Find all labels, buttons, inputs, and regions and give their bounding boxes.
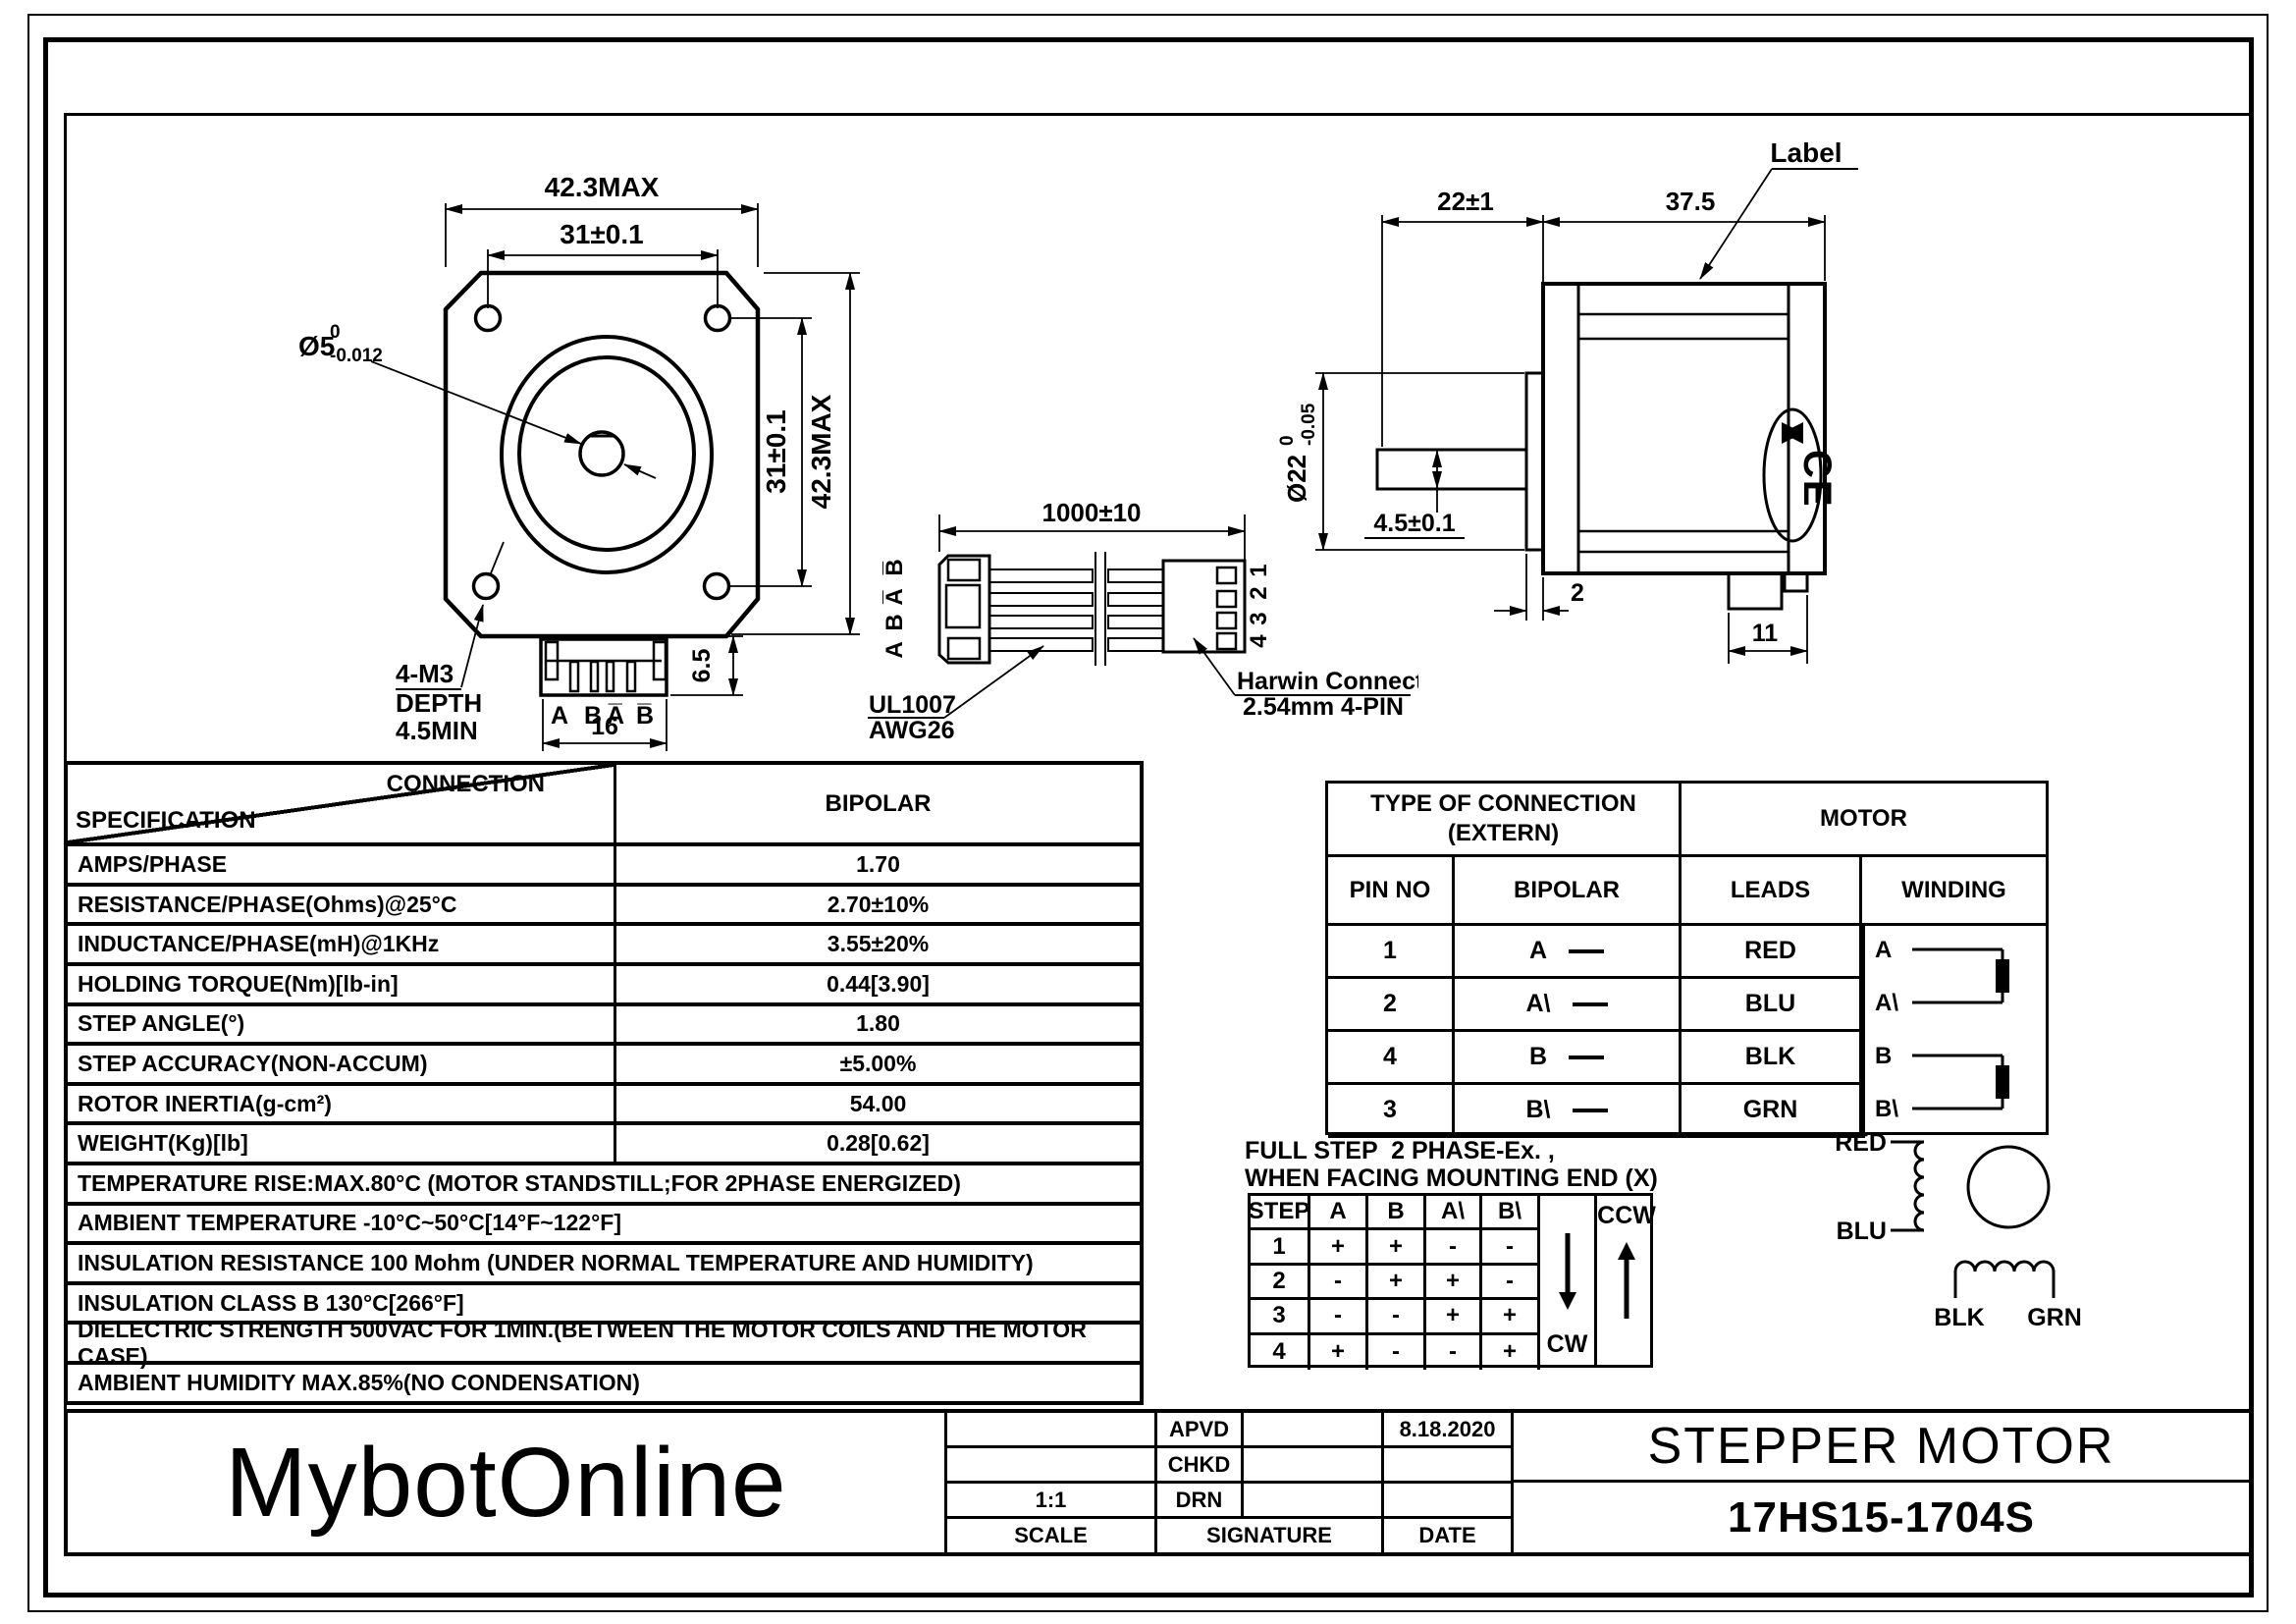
- lead-color: RED: [1682, 926, 1862, 976]
- fs-step: 4: [1251, 1335, 1310, 1370]
- spec-header-diagonal-cell: CONNECTION SPECIFICATION: [68, 765, 616, 842]
- winding-label-a: A: [1875, 937, 1892, 963]
- fullstep-row: 2 - + + -: [1251, 1266, 1540, 1300]
- dim-body-length: 37.5: [1666, 187, 1716, 216]
- spec-label: HOLDING TORQUE(Nm)[lb-in]: [68, 966, 616, 1002]
- spec-label: INDUCTANCE/PHASE(mH)@1KHz: [68, 926, 616, 962]
- title-block: MybotOnline 1:1 SCALE APVD CHKD DRN SIGN…: [64, 1409, 2253, 1556]
- fs-val: +: [1310, 1230, 1368, 1262]
- fullstep-row: 1 + + - -: [1251, 1230, 1540, 1265]
- thread-note-line2: DEPTH: [396, 688, 482, 718]
- dim-hole-spacing-v: 31±0.1: [761, 409, 791, 493]
- shaft-leader-tail: [624, 464, 656, 478]
- spec-row: INDUCTANCE/PHASE(mH)@1KHz3.55±20%: [68, 922, 1140, 962]
- fullstep-title-line1: FULL STEP 2 PHASE-Ex. ,: [1245, 1137, 1555, 1165]
- scale-value: 1:1: [947, 1484, 1157, 1519]
- drawing-title: STEPPER MOTOR: [1514, 1413, 2249, 1483]
- connection-table-subheader: PIN NO BIPOLAR LEADS WINDING: [1328, 857, 2046, 926]
- fullstep-row: 4 + - - +: [1251, 1335, 1540, 1370]
- dim-cable-length: 1000±10: [1041, 498, 1141, 527]
- date-cell-blank: [1384, 1484, 1514, 1519]
- boss-dia-label: Ø22: [1282, 455, 1311, 503]
- rotor-circle: [1968, 1147, 2049, 1227]
- fs-val: +: [1368, 1266, 1426, 1297]
- bipolar-phase: A\: [1455, 979, 1682, 1029]
- spec-value: 0.44[3.90]: [616, 966, 1140, 1002]
- cw-arrow-icon: [1559, 1233, 1576, 1310]
- company-logo: MybotOnline: [68, 1413, 947, 1552]
- spec-note: AMBIENT HUMIDITY MAX.85%(NO CONDENSATION…: [68, 1361, 1140, 1401]
- harwin-pin: [1217, 591, 1236, 607]
- side-connector: [1729, 573, 1782, 609]
- spec-value: 0.28[0.62]: [616, 1125, 1140, 1162]
- ce-mark-text: CE: [1795, 450, 1839, 509]
- screw-hole: [706, 306, 730, 331]
- connector-pin: [570, 662, 578, 691]
- header-extern-line2: (EXTERN): [1448, 819, 1559, 848]
- col-bipolar: BIPOLAR: [1455, 857, 1682, 923]
- scale-cell-blank: [947, 1448, 1157, 1484]
- wire-stub: [1569, 1056, 1604, 1059]
- fs-val: +: [1426, 1300, 1482, 1331]
- date-label: DATE: [1384, 1519, 1514, 1552]
- coil-a: [1996, 959, 2009, 993]
- fs-step: 1: [1251, 1230, 1310, 1262]
- wire-stub: [1569, 949, 1604, 953]
- spec-note: INSULATION RESISTANCE 100 Mohm (UNDER NO…: [68, 1241, 1140, 1281]
- boss-tol-lower: -0.05: [1299, 403, 1319, 446]
- date-cell-blank: [1384, 1448, 1514, 1484]
- fs-val: +: [1368, 1230, 1426, 1262]
- fs-val: -: [1426, 1335, 1482, 1370]
- lead-red-label: RED: [1835, 1129, 1887, 1157]
- dim-boss-thickness: 2: [1571, 579, 1584, 607]
- pin-label-bbar: B̅: [636, 702, 654, 730]
- chkd-label: CHKD: [1157, 1448, 1244, 1484]
- boss-dia-callout: Ø22 0 -0.05: [1277, 403, 1319, 503]
- lead-blu-label: BLU: [1837, 1218, 1887, 1245]
- scale-cell-blank: [947, 1413, 1157, 1448]
- coil-phase-b: [1955, 1262, 2054, 1298]
- connection-row: 4 B BLK: [1328, 1032, 1865, 1085]
- spec-label: STEP ANGLE(°): [68, 1006, 616, 1043]
- fs-val: +: [1310, 1335, 1368, 1370]
- phase-label: B: [1529, 1043, 1547, 1071]
- fullstep-row: 3 - - + +: [1251, 1300, 1540, 1334]
- dim-side-connector-width: 11: [1752, 620, 1779, 647]
- pin-no: 2: [1328, 979, 1455, 1029]
- approval-date: 8.18.2020: [1384, 1413, 1514, 1448]
- header-motor: MOTOR: [1682, 784, 2046, 854]
- spec-header-specification: SPECIFICATION: [76, 807, 256, 835]
- wire-spec-line1: UL1007: [869, 691, 956, 719]
- fs-val: -: [1482, 1266, 1540, 1297]
- label-callout: Label: [1770, 137, 1842, 168]
- pilot-boss-inner: [519, 357, 694, 550]
- signature-label: SIGNATURE: [1157, 1519, 1384, 1552]
- fs-val: -: [1368, 1300, 1426, 1331]
- harwin-leader: [1194, 638, 1235, 695]
- part-number: 17HS15-1704S: [1514, 1483, 2249, 1552]
- winding-label-abar: A\: [1875, 990, 1898, 1016]
- pin-no: 4: [1328, 1032, 1455, 1082]
- coil-phase-a: [1915, 1142, 1924, 1230]
- front-connector-outline: [541, 639, 667, 695]
- fs-val: -: [1310, 1300, 1368, 1331]
- spec-value: 2.70±10%: [616, 887, 1140, 923]
- spec-label: ROTOR INERTIA(g-cm²): [68, 1086, 616, 1122]
- wire-stub: [1573, 1002, 1608, 1006]
- shaft-tol-upper: 0: [330, 322, 341, 343]
- winding-diagram: RED BLU BLK GRN: [1826, 1110, 2101, 1335]
- col-leads: LEADS: [1682, 857, 1862, 923]
- thread-note-line1: 4-M3: [396, 659, 454, 688]
- spec-row: ROTOR INERTIA(g-cm²)54.00: [68, 1082, 1140, 1122]
- connector-pin: [627, 662, 635, 691]
- spec-header-connection: CONNECTION: [387, 771, 545, 798]
- winding-schematic: A A\ B B\: [1865, 926, 2046, 1132]
- phase-label: A: [1529, 937, 1547, 965]
- spec-value: 1.80: [616, 1006, 1140, 1043]
- connector-pin: [607, 662, 614, 691]
- shaft-leader: [371, 361, 581, 444]
- fs-col-bbar: B\: [1482, 1196, 1540, 1227]
- spec-row: STEP ACCURACY(NON-ACCUM)±5.00%: [68, 1042, 1140, 1082]
- coil-b: [1996, 1065, 2009, 1099]
- fs-col-step: STEP: [1251, 1196, 1310, 1227]
- spec-header-bipolar: BIPOLAR: [616, 765, 1140, 842]
- spec-note: TEMPERATURE RISE:MAX.80°C (MOTOR STANDST…: [68, 1162, 1140, 1202]
- spec-note: DIELECTRIC STRENGTH 500VAC FOR 1MIN.(BET…: [68, 1321, 1140, 1361]
- fullstep-header-row: STEP A B A\ B\: [1251, 1196, 1540, 1230]
- spec-value: ±5.00%: [616, 1046, 1140, 1082]
- fs-val: +: [1426, 1266, 1482, 1297]
- fs-col-a: A: [1310, 1196, 1368, 1227]
- cable-wire-label: A̅: [881, 588, 908, 605]
- spec-label: WEIGHT(Kg)[lb]: [68, 1125, 616, 1162]
- connector-pin: [591, 662, 598, 691]
- dim-connector-width: 16: [591, 713, 618, 740]
- side-connector-latch: [1785, 573, 1807, 591]
- fs-val: -: [1426, 1230, 1482, 1262]
- phase-label: A\: [1526, 990, 1551, 1018]
- connection-row: 1 A RED: [1328, 926, 1865, 979]
- wire-spec-leader: [944, 646, 1043, 718]
- dim-height-max: 42.3MAX: [806, 394, 836, 509]
- fs-col-abar: A\: [1426, 1196, 1482, 1227]
- shaft-circle: [580, 432, 623, 475]
- screw-hole: [476, 306, 501, 331]
- harwin-pin: [1217, 633, 1236, 649]
- fs-val: +: [1482, 1335, 1540, 1370]
- fullstep-table: STEP A B A\ B\ 1 + + - - 2 - + + - 3: [1248, 1193, 1653, 1368]
- fs-val: -: [1482, 1230, 1540, 1262]
- lead-blk-label: BLK: [1934, 1304, 1984, 1331]
- ccw-arrow-icon: [1618, 1242, 1635, 1319]
- cw-direction-cell: CW: [1540, 1196, 1597, 1365]
- spec-row: AMPS/PHASE1.70: [68, 842, 1140, 883]
- header-extern-line1: TYPE OF CONNECTION: [1370, 789, 1636, 819]
- front-view-drawing: Ø5 0 -0.012 42.3MAX 31±0.1 31±0.1 42.3MA…: [177, 118, 923, 766]
- fs-val: -: [1368, 1335, 1426, 1370]
- spec-note: INSULATION CLASS B 130°C[266°F]: [68, 1281, 1140, 1322]
- winding-schematic-cell: A A\ B B\: [1862, 926, 2046, 1135]
- col-winding: WINDING: [1862, 857, 2046, 923]
- wire-stub: [1573, 1109, 1608, 1112]
- boss-tol-upper: 0: [1277, 435, 1298, 446]
- screw-hole: [705, 574, 729, 599]
- fs-col-b: B: [1368, 1196, 1426, 1227]
- winding-label-b: B: [1875, 1043, 1892, 1069]
- dim-shaft-length: 22±1: [1437, 187, 1494, 216]
- bipolar-phase: B: [1455, 1032, 1682, 1082]
- ccw-label: CCW: [1597, 1202, 1656, 1230]
- drn-label: DRN: [1157, 1484, 1244, 1519]
- connection-row: 2 A\ BLU: [1328, 979, 1865, 1032]
- pilot-boss-outer: [502, 337, 712, 572]
- pilot-boss-side: [1526, 373, 1543, 550]
- cable-wire-label: A: [881, 641, 908, 658]
- connection-row: 3 B\ GRN: [1328, 1085, 1865, 1138]
- spec-value: 1.70: [616, 846, 1140, 883]
- signature-cell-blank: [1244, 1448, 1384, 1484]
- fs-step: 3: [1251, 1300, 1310, 1331]
- fullstep-title-line2: WHEN FACING MOUNTING END (X): [1245, 1164, 1658, 1193]
- cable-wire-label: B: [881, 614, 908, 630]
- spec-value: 3.55±20%: [616, 926, 1140, 962]
- connection-table: TYPE OF CONNECTION (EXTERN) MOTOR PIN NO…: [1325, 781, 2049, 1135]
- bipolar-phase: A: [1455, 926, 1682, 976]
- bipolar-phase: B\: [1455, 1085, 1682, 1135]
- col-pin-no: PIN NO: [1328, 857, 1455, 923]
- pin-no: 3: [1328, 1085, 1455, 1135]
- phase-label: B\: [1526, 1096, 1551, 1124]
- specification-table: CONNECTION SPECIFICATION BIPOLAR AMPS/PH…: [64, 761, 1144, 1405]
- spec-value: 54.00: [616, 1086, 1140, 1122]
- thread-note-line3: 4.5MIN: [396, 716, 478, 745]
- spec-label: AMPS/PHASE: [68, 846, 616, 883]
- connection-table-header: TYPE OF CONNECTION (EXTERN) MOTOR: [1328, 784, 2046, 857]
- signature-cell-blank: [1244, 1413, 1384, 1448]
- dim-hole-spacing-h: 31±0.1: [560, 219, 643, 249]
- spec-header-row: CONNECTION SPECIFICATION BIPOLAR: [68, 765, 1140, 842]
- harwin-pin: [1217, 613, 1236, 628]
- harwin-note-line2: 2.54mm 4-PIN: [1243, 693, 1404, 721]
- cable-wire-label: B̅: [881, 559, 908, 575]
- dim-width-max: 42.3MAX: [545, 172, 660, 202]
- pin-no: 1: [1328, 926, 1455, 976]
- side-view-drawing: Label 22±1 37.5 Ø22 0 -0.05 4.: [1266, 128, 1877, 687]
- lead-color: BLK: [1682, 1032, 1862, 1082]
- wire-bundle: [989, 569, 1163, 651]
- fs-val: -: [1310, 1266, 1368, 1297]
- lead-color: BLU: [1682, 979, 1862, 1029]
- spec-row: RESISTANCE/PHASE(Ohms)@25°C2.70±10%: [68, 883, 1140, 923]
- dim-shaft-dia: 4.5±0.1: [1373, 510, 1455, 537]
- apvd-label: APVD: [1157, 1413, 1244, 1448]
- cw-label: CW: [1547, 1330, 1588, 1359]
- ccw-direction-cell: CCW: [1597, 1196, 1656, 1365]
- spec-label: RESISTANCE/PHASE(Ohms)@25°C: [68, 887, 616, 923]
- fs-step: 2: [1251, 1266, 1310, 1297]
- spec-row: STEP ANGLE(°)1.80: [68, 1002, 1140, 1043]
- screw-hole: [474, 574, 499, 599]
- fs-val: +: [1482, 1300, 1540, 1331]
- spec-row: WEIGHT(Kg)[lb]0.28[0.62]: [68, 1121, 1140, 1162]
- pin-label-a: A: [551, 702, 568, 730]
- scale-label: SCALE: [947, 1519, 1157, 1552]
- dim-connector-height: 6.5: [688, 649, 716, 683]
- spec-row: HOLDING TORQUE(Nm)[lb-in]0.44[3.90]: [68, 962, 1140, 1002]
- signature-cell-blank: [1244, 1484, 1384, 1519]
- shaft-side: [1377, 450, 1526, 489]
- spec-label: STEP ACCURACY(NON-ACCUM): [68, 1046, 616, 1082]
- drawing-sheet: Ø5 0 -0.012 42.3MAX 31±0.1 31±0.1 42.3MA…: [0, 0, 2296, 1624]
- harwin-pin: [1217, 568, 1236, 583]
- spec-note: AMBIENT TEMPERATURE -10°C~50°C[14°F~122°…: [68, 1202, 1140, 1242]
- header-type-of-connection: TYPE OF CONNECTION (EXTERN): [1328, 784, 1682, 854]
- wire-spec-line2: AWG26: [869, 717, 955, 744]
- lead-grn-label: GRN: [2027, 1304, 2082, 1331]
- label-leader: [1700, 169, 1772, 279]
